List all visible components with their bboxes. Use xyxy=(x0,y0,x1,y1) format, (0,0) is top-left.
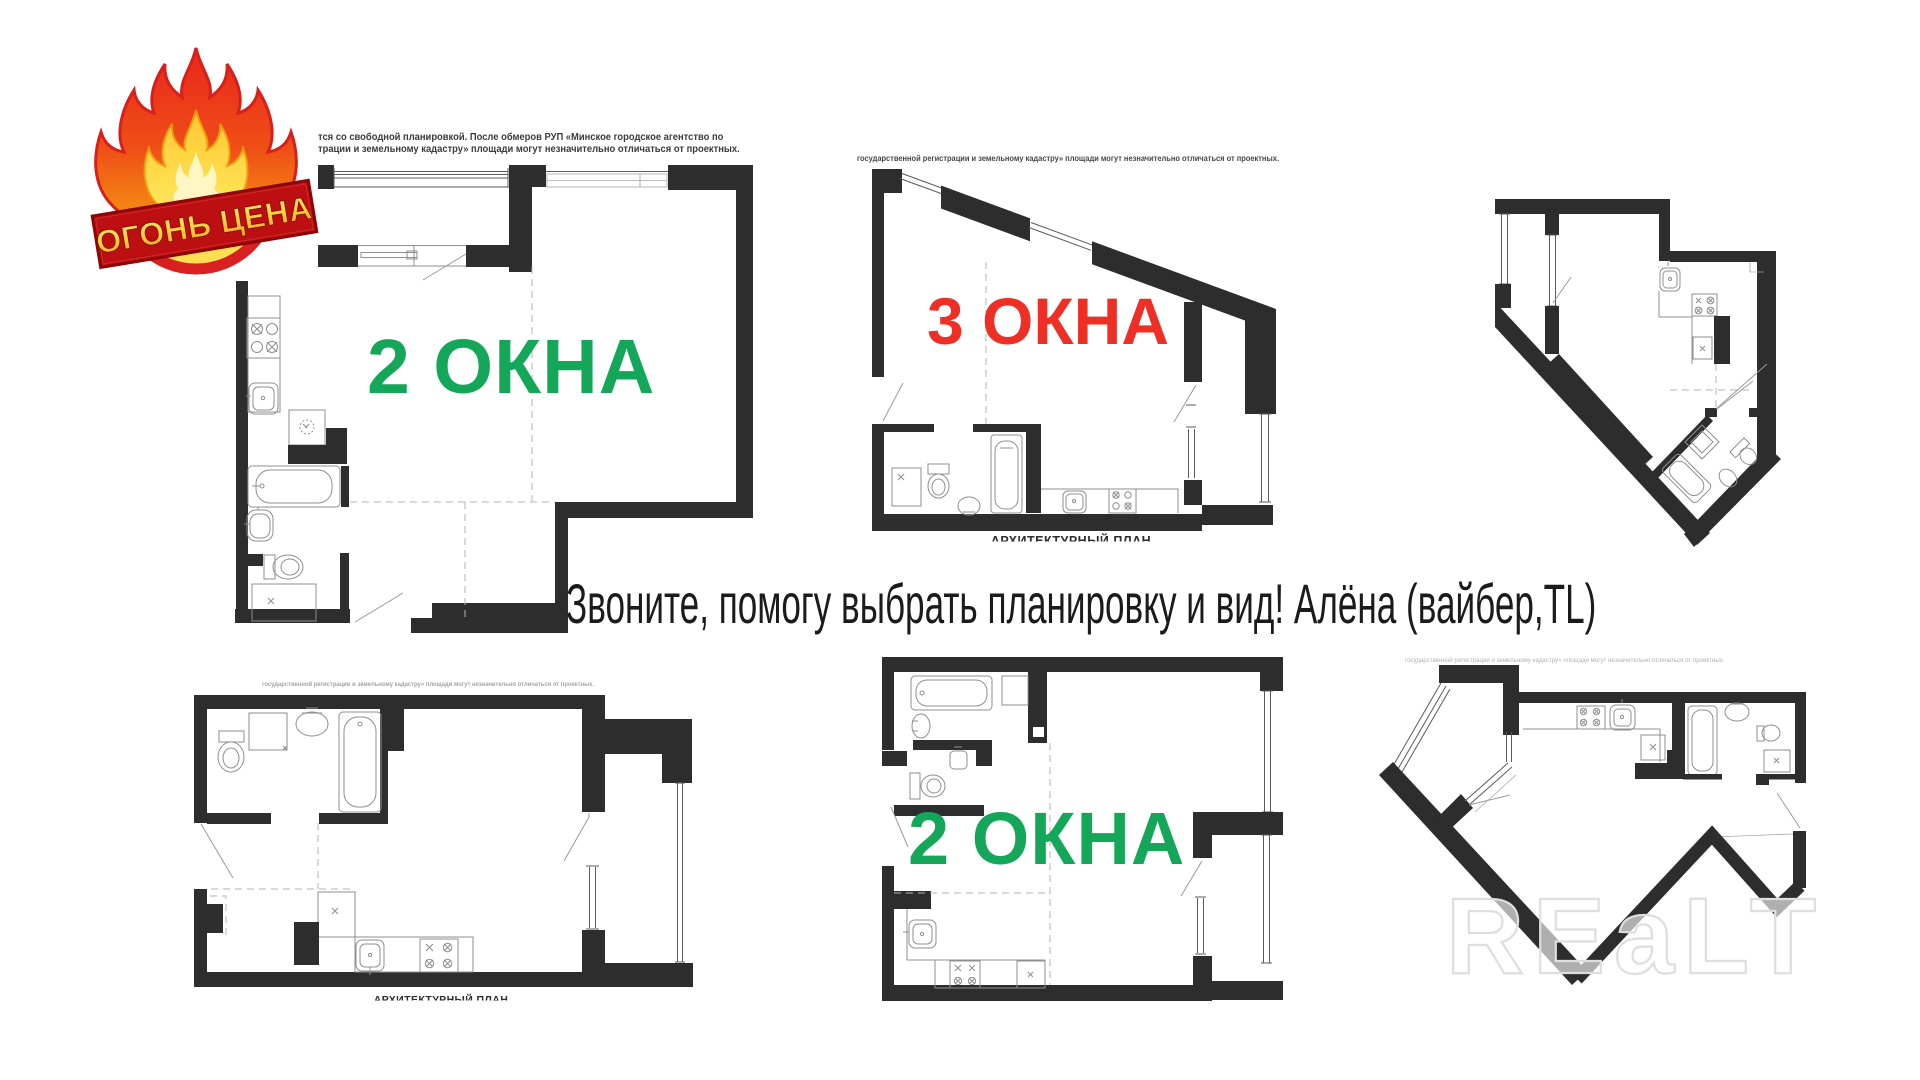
svg-text:2 ОКНА: 2 ОКНА xyxy=(367,324,655,410)
svg-text:трации и земельному кадастру»: трации и земельному кадастру» площади мо… xyxy=(318,144,740,155)
svg-text:государственной регистрации и: государственной регистрации и земельному… xyxy=(857,154,1279,164)
svg-text:государственной регистрации и: государственной регистрации и земельному… xyxy=(262,681,594,688)
svg-text:государственной регистрации и: государственной регистрации и земельному… xyxy=(1405,657,1725,664)
svg-text:REaLT: REaLT xyxy=(1446,875,1820,996)
svg-text:2 ОКНА: 2 ОКНА xyxy=(908,797,1185,880)
svg-text:3 ОКНА: 3 ОКНА xyxy=(927,284,1169,358)
svg-text:тся со свободной планировкой.: тся со свободной планировкой. После обме… xyxy=(318,132,723,143)
